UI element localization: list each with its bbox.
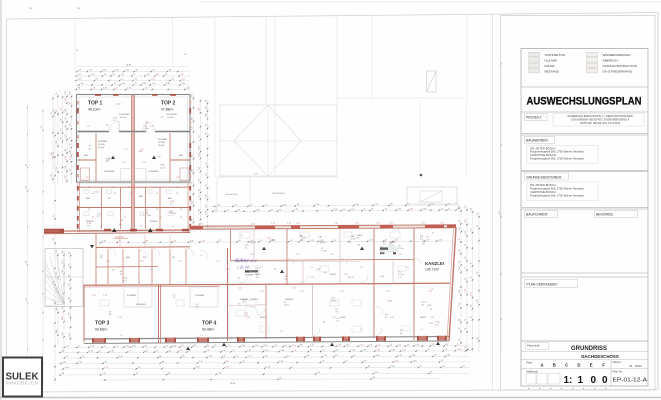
svg-text:86: 86	[62, 373, 64, 375]
svg-text:2,25: 2,25	[260, 291, 264, 293]
svg-text:1,25: 1,25	[69, 283, 71, 287]
svg-text:1,13: 1,13	[56, 167, 58, 171]
svg-text:2,0: 2,0	[116, 345, 119, 347]
svg-text:95: 95	[206, 184, 208, 186]
svg-text:95: 95	[105, 362, 107, 364]
svg-text:75: 75	[56, 93, 58, 95]
svg-text:1,75: 1,75	[287, 223, 291, 225]
svg-text:95: 95	[92, 193, 94, 195]
svg-text:75: 75	[133, 74, 135, 76]
svg-text:75: 75	[140, 226, 142, 228]
svg-text:2,10: 2,10	[465, 219, 467, 223]
svg-text:75: 75	[120, 209, 122, 211]
svg-text:85: 85	[432, 233, 434, 235]
svg-text:CHRISTINE BÖSCH: CHRISTINE BÖSCH	[530, 153, 556, 157]
svg-text:1,75: 1,75	[355, 223, 359, 225]
svg-text:75: 75	[61, 138, 63, 140]
svg-text:PROJEKT:: PROJEKT:	[526, 115, 542, 119]
svg-text:HLZ-MW: HLZ-MW	[545, 59, 557, 63]
svg-text:1,25: 1,25	[218, 373, 222, 375]
svg-text:3,2: 3,2	[398, 344, 401, 346]
svg-text:1.26. 04: 1.26. 04	[237, 266, 249, 270]
svg-text:86: 86	[78, 88, 80, 90]
svg-text:2,0: 2,0	[465, 206, 467, 209]
svg-text:75: 75	[128, 187, 130, 189]
svg-text:3,2: 3,2	[477, 213, 479, 216]
svg-text:2,0: 2,0	[442, 366, 445, 368]
svg-text:1,25: 1,25	[413, 360, 417, 362]
svg-text:1,4: 1,4	[280, 331, 283, 333]
svg-text:2,25: 2,25	[428, 291, 432, 293]
svg-text:2,10: 2,10	[375, 355, 379, 357]
svg-text:75: 75	[335, 355, 337, 357]
svg-text:75: 75	[465, 319, 467, 321]
svg-text:75: 75	[135, 79, 137, 81]
svg-text:11: 11	[29, 6, 32, 10]
svg-text:2,10: 2,10	[78, 79, 82, 81]
svg-text:1,4: 1,4	[471, 208, 473, 211]
svg-text:BÜRO: BÜRO	[250, 241, 256, 244]
svg-text:BAUWERBER:: BAUWERBER:	[526, 139, 549, 143]
svg-text:86: 86	[26, 261, 28, 263]
svg-text:1,75: 1,75	[296, 223, 300, 225]
svg-text:2,0: 2,0	[307, 355, 310, 357]
svg-text:1,25: 1,25	[196, 367, 200, 369]
svg-text:86: 86	[69, 297, 71, 299]
svg-text:2,25: 2,25	[300, 291, 304, 293]
svg-text:2,0: 2,0	[78, 70, 81, 72]
svg-text:VORRAUM: VORRAUM	[104, 170, 115, 173]
svg-text:1,13: 1,13	[70, 169, 72, 173]
svg-text:1,25: 1,25	[65, 166, 67, 170]
svg-text:12,5m: 12,5m	[170, 213, 176, 215]
svg-text:95: 95	[192, 155, 194, 157]
svg-text:86: 86	[168, 373, 170, 375]
svg-text:75: 75	[448, 208, 450, 210]
svg-text:1,4: 1,4	[182, 79, 185, 81]
svg-text:2,10: 2,10	[192, 126, 194, 130]
svg-text:2,25: 2,25	[92, 295, 96, 297]
svg-text:95: 95	[420, 366, 422, 368]
svg-text:1,4: 1,4	[310, 267, 313, 269]
svg-text:PLAN-VERFASSER:: PLAN-VERFASSER:	[527, 282, 558, 286]
svg-text:TOP 4: TOP 4	[202, 321, 216, 327]
svg-text:75: 75	[459, 238, 461, 240]
svg-text:95: 95	[180, 217, 182, 219]
svg-text:1,76: 1,76	[206, 194, 208, 198]
svg-text:75: 75	[219, 240, 221, 242]
svg-text:2,0: 2,0	[65, 125, 67, 128]
svg-text:ABBRUCH: ABBRUCH	[603, 59, 618, 63]
svg-text:86: 86	[206, 100, 208, 102]
svg-text:1,76: 1,76	[90, 346, 94, 348]
svg-text:75: 75	[96, 79, 98, 81]
svg-text:75: 75	[172, 226, 174, 228]
svg-text:DD-MA: DD-MA	[545, 64, 556, 68]
svg-text:2,0: 2,0	[193, 345, 196, 347]
svg-text:DACHBODEN: DACHBODEN	[225, 193, 238, 196]
svg-text:1,13: 1,13	[225, 367, 229, 369]
svg-text:86: 86	[199, 209, 201, 211]
svg-text:2,0: 2,0	[51, 112, 53, 115]
svg-text:75: 75	[69, 252, 71, 254]
svg-text:86: 86	[53, 109, 55, 111]
svg-text:ZIMMER: ZIMMER	[285, 299, 294, 301]
svg-text:1,4: 1,4	[199, 167, 201, 170]
svg-text:2,25: 2,25	[296, 254, 300, 256]
svg-text:1,25: 1,25	[122, 162, 126, 164]
svg-text:2,0: 2,0	[434, 355, 437, 357]
svg-text:BAD: BAD	[86, 197, 91, 200]
svg-text:86: 86	[146, 241, 148, 243]
svg-text:SCHRANK: SCHRANK	[195, 294, 205, 297]
svg-text:1,25: 1,25	[457, 349, 461, 351]
svg-text:86: 86	[157, 74, 159, 76]
svg-text:1,25: 1,25	[89, 351, 93, 353]
svg-text:2,25: 2,25	[118, 317, 122, 319]
svg-text:95: 95	[271, 209, 273, 211]
svg-text:86: 86	[192, 169, 194, 171]
svg-text:2,10: 2,10	[102, 373, 106, 375]
svg-text:2,10: 2,10	[355, 204, 359, 206]
svg-text:2,45: 2,45	[199, 153, 201, 157]
svg-text:55: 55	[430, 372, 432, 374]
svg-text:1,4: 1,4	[432, 344, 435, 346]
svg-text:2,0: 2,0	[236, 356, 239, 358]
svg-text:1,25: 1,25	[89, 70, 93, 72]
svg-text:BAD: BAD	[168, 197, 173, 200]
svg-text:1,75: 1,75	[389, 223, 393, 225]
svg-text:86: 86	[182, 356, 184, 358]
svg-text:2,45: 2,45	[206, 350, 210, 352]
svg-text:55: 55	[93, 88, 95, 90]
svg-text:2,10: 2,10	[199, 361, 203, 363]
svg-text:2,10: 2,10	[360, 345, 364, 347]
svg-text:75: 75	[465, 328, 467, 330]
svg-text:86: 86	[238, 210, 240, 212]
svg-text:1,4: 1,4	[406, 267, 409, 269]
svg-text:75: 75	[135, 83, 137, 85]
svg-text:1,4: 1,4	[459, 261, 461, 264]
svg-text:1,25: 1,25	[398, 355, 402, 357]
svg-text:2,45: 2,45	[352, 350, 356, 352]
svg-text:KÜCHE: KÜCHE	[98, 143, 106, 146]
svg-text:12,5m: 12,5m	[398, 274, 404, 276]
svg-text:2,0: 2,0	[265, 355, 268, 357]
svg-text:1,76: 1,76	[206, 204, 208, 208]
svg-text:GRST.NR. 582 EZ 303, KG 23444: GRST.NR. 582 EZ 303, KG 23444	[580, 121, 621, 125]
svg-text:SCHLAFEN: SCHLAFEN	[119, 113, 130, 116]
svg-text:75: 75	[199, 189, 201, 191]
svg-text:1,4: 1,4	[78, 74, 81, 76]
svg-text:1,76: 1,76	[206, 211, 208, 215]
svg-text:1,25: 1,25	[206, 106, 208, 110]
svg-text:EP-01-12-A: EP-01-12-A	[613, 377, 648, 383]
svg-text:75: 75	[407, 344, 409, 346]
svg-text:2,45: 2,45	[395, 360, 399, 362]
svg-text:BESTAND: BESTAND	[545, 69, 560, 73]
svg-text:1,13: 1,13	[65, 367, 69, 369]
svg-text:75: 75	[112, 187, 114, 189]
svg-text:1,25: 1,25	[176, 177, 180, 179]
svg-text:2,10: 2,10	[265, 350, 269, 352]
svg-text:1,4: 1,4	[200, 255, 203, 257]
svg-text:1,25: 1,25	[65, 134, 67, 138]
svg-text:1,25: 1,25	[86, 126, 90, 128]
svg-text:1,25: 1,25	[69, 275, 71, 279]
svg-text:2,25: 2,25	[140, 261, 144, 263]
svg-text:BAUFÜHRER:: BAUFÜHRER:	[526, 213, 548, 217]
svg-text:STAHLBETON: STAHLBETON	[545, 53, 565, 57]
svg-text:BÜRO: BÜRO	[260, 316, 266, 319]
svg-text:2,10: 2,10	[208, 356, 212, 358]
svg-text:WOHNEN: WOHNEN	[136, 304, 146, 306]
svg-text:1,4: 1,4	[181, 74, 184, 76]
svg-text:1,4: 1,4	[265, 204, 268, 206]
svg-text:12,5m: 12,5m	[331, 300, 337, 302]
svg-text:2,10: 2,10	[397, 209, 401, 211]
svg-text:1,13: 1,13	[465, 231, 467, 235]
svg-text:C: C	[565, 363, 568, 368]
svg-text:BÜRO: BÜRO	[330, 273, 336, 276]
svg-text:1,25: 1,25	[248, 355, 252, 357]
svg-text:2,25: 2,25	[310, 277, 314, 279]
svg-text:2,0: 2,0	[471, 229, 473, 232]
svg-text:95: 95	[181, 345, 183, 347]
svg-text:86: 86	[136, 70, 138, 72]
svg-text:3,2: 3,2	[104, 346, 107, 348]
svg-text:2,0: 2,0	[343, 209, 346, 211]
svg-text:TOP 3: TOP 3	[95, 321, 109, 327]
svg-text:2,0: 2,0	[477, 272, 479, 275]
svg-text:95: 95	[160, 217, 162, 219]
svg-text:55: 55	[56, 110, 58, 112]
svg-text:3,2: 3,2	[333, 240, 336, 242]
svg-text:2,10: 2,10	[119, 356, 123, 358]
svg-text:2,10: 2,10	[415, 344, 419, 346]
svg-text:1,4: 1,4	[62, 333, 64, 336]
svg-text:86: 86	[467, 349, 469, 351]
svg-text:1,76: 1,76	[127, 88, 131, 90]
svg-text:55: 55	[116, 88, 118, 90]
svg-text:95: 95	[69, 264, 71, 266]
svg-text:2,10: 2,10	[241, 345, 245, 347]
svg-text:95: 95	[114, 193, 116, 195]
svg-text:1,75: 1,75	[421, 222, 425, 224]
svg-text:1,25: 1,25	[338, 345, 342, 347]
svg-text:1,4: 1,4	[200, 335, 203, 337]
svg-text:55: 55	[112, 74, 114, 76]
svg-text:95: 95	[192, 95, 194, 97]
svg-text:1,25: 1,25	[426, 239, 430, 241]
svg-text:1,25: 1,25	[423, 208, 427, 210]
svg-text:SCHLAFEN: SCHLAFEN	[166, 113, 177, 116]
svg-text:2,45: 2,45	[115, 70, 119, 72]
svg-text:2,10: 2,10	[323, 355, 327, 357]
svg-text:75: 75	[180, 209, 182, 211]
svg-text:CHRISTINE BÖSCH: CHRISTINE BÖSCH	[530, 190, 556, 194]
svg-text:1,4: 1,4	[215, 210, 218, 212]
svg-text:95: 95	[156, 193, 158, 195]
svg-text:75: 75	[459, 328, 461, 330]
svg-text:2,45: 2,45	[125, 345, 129, 347]
svg-text:Purgleitnergasse 50b, 2700 Wie: Purgleitnergasse 50b, 2700 Wiener Neusta…	[530, 193, 584, 197]
svg-text:86: 86	[457, 208, 459, 210]
svg-text:3,2: 3,2	[121, 79, 124, 81]
svg-text:86: 86	[465, 346, 467, 348]
svg-text:3,2: 3,2	[138, 367, 141, 369]
svg-text:95: 95	[345, 361, 347, 363]
svg-text:2,10: 2,10	[391, 349, 395, 351]
svg-text:2,10: 2,10	[61, 128, 63, 132]
svg-text:1,4: 1,4	[317, 372, 320, 374]
svg-text:Plan-Nr.:: Plan-Nr.:	[613, 370, 624, 374]
svg-text:2,45: 2,45	[192, 201, 194, 205]
svg-text:2,45: 2,45	[206, 113, 208, 117]
svg-text:56,48m²: 56,48m²	[202, 328, 215, 332]
svg-text:2,10: 2,10	[279, 361, 283, 363]
svg-text:75: 75	[471, 262, 473, 264]
svg-text:2,45: 2,45	[256, 209, 260, 211]
svg-text:2,45: 2,45	[56, 307, 58, 311]
svg-text:1,13: 1,13	[255, 345, 259, 347]
svg-text:2,10: 2,10	[292, 345, 296, 347]
svg-text:1,13: 1,13	[53, 238, 55, 242]
svg-text:2,0: 2,0	[369, 344, 372, 346]
svg-text:2,0: 2,0	[364, 360, 367, 362]
svg-text:86: 86	[368, 366, 370, 368]
svg-text:95: 95	[153, 70, 155, 72]
svg-text:3,2: 3,2	[275, 345, 278, 347]
svg-text:55: 55	[61, 119, 63, 121]
svg-text:86: 86	[192, 118, 194, 120]
svg-text:14,85: 14,85	[126, 65, 132, 67]
svg-text:12,5m: 12,5m	[143, 128, 149, 130]
svg-text:2,45: 2,45	[431, 203, 435, 205]
svg-text:2,25: 2,25	[246, 317, 250, 319]
svg-text:85: 85	[430, 309, 432, 311]
svg-text:1,25: 1,25	[151, 79, 155, 81]
svg-text:KANZLEI: KANZLEI	[425, 261, 444, 266]
svg-text:75: 75	[192, 182, 194, 184]
svg-text:1,4: 1,4	[128, 350, 131, 352]
svg-text:1,4: 1,4	[360, 267, 363, 269]
svg-text:WÄRMEDÄMMUNG: WÄRMEDÄMMUNG	[603, 53, 632, 57]
svg-text:2,25: 2,25	[390, 317, 394, 319]
svg-text:2,25: 2,25	[340, 291, 344, 293]
svg-text:55: 55	[463, 366, 465, 368]
svg-text:55: 55	[322, 361, 324, 363]
svg-text:86: 86	[62, 351, 64, 353]
svg-text:1,76: 1,76	[375, 372, 379, 374]
svg-text:95: 95	[465, 244, 467, 246]
svg-text:1,25: 1,25	[132, 345, 136, 347]
svg-text:86: 86	[145, 345, 147, 347]
svg-text:86: 86	[65, 149, 67, 151]
svg-text:ZIMMER: ZIMMER	[150, 221, 158, 223]
svg-text:3,2: 3,2	[206, 163, 208, 166]
svg-text:1,4: 1,4	[240, 235, 243, 237]
svg-text:55: 55	[156, 350, 158, 352]
svg-text:GK-STÄNDERWAND: GK-STÄNDERWAND	[603, 69, 633, 73]
svg-text:1,4: 1,4	[222, 350, 225, 352]
svg-text:95: 95	[300, 345, 302, 347]
svg-text:3,2: 3,2	[168, 350, 171, 352]
svg-text:55: 55	[477, 225, 479, 227]
svg-text:0: 0	[591, 375, 597, 386]
svg-text:DACHGESCHOSS: DACHGESCHOSS	[581, 354, 619, 359]
svg-text:2,45: 2,45	[199, 108, 201, 112]
svg-text:Maßstab:: Maßstab:	[527, 370, 539, 374]
svg-text:75: 75	[232, 350, 234, 352]
svg-text:2,25: 2,25	[398, 254, 402, 256]
svg-text:3,2: 3,2	[104, 74, 107, 76]
svg-text:75: 75	[88, 209, 90, 211]
svg-text:2,45: 2,45	[51, 152, 53, 156]
svg-text:75: 75	[459, 339, 461, 341]
svg-text:86: 86	[226, 361, 228, 363]
svg-text:1:: 1:	[564, 375, 573, 386]
svg-text:12,5m: 12,5m	[389, 245, 395, 247]
svg-text:1,25: 1,25	[294, 209, 298, 211]
svg-text:0: 0	[602, 375, 608, 386]
svg-text:Bühler u.v.: Bühler u.v.	[235, 258, 258, 264]
svg-text:01 - 2002: 01 - 2002	[629, 364, 642, 368]
svg-text:86: 86	[169, 70, 171, 72]
svg-text:1,76: 1,76	[104, 367, 108, 369]
svg-text:1,25: 1,25	[334, 209, 338, 211]
svg-text:1,4: 1,4	[206, 173, 208, 176]
svg-text:75: 75	[471, 276, 473, 278]
svg-text:75: 75	[165, 74, 167, 76]
svg-text:B: B	[553, 363, 556, 368]
svg-text:VORRAUM: VORRAUM	[148, 170, 159, 173]
svg-text:55: 55	[441, 208, 443, 210]
svg-text:1,76: 1,76	[53, 152, 55, 156]
svg-text:1,76: 1,76	[70, 124, 72, 128]
svg-text:DACHBODEN: DACHBODEN	[272, 192, 285, 195]
svg-text:86: 86	[159, 356, 161, 358]
svg-text:14,5m²: 14,5m²	[120, 116, 127, 119]
svg-text:75: 75	[156, 209, 158, 211]
svg-text:14,5m²: 14,5m²	[167, 116, 174, 119]
svg-text:1,76: 1,76	[70, 91, 72, 95]
svg-text:86: 86	[297, 204, 299, 206]
svg-text:BAD: BAD	[126, 256, 131, 259]
svg-text:95: 95	[130, 193, 132, 195]
svg-text:2,10: 2,10	[363, 349, 367, 351]
svg-text:3,2: 3,2	[336, 350, 339, 352]
svg-text:1,25: 1,25	[150, 126, 154, 128]
svg-text:1,4: 1,4	[179, 350, 182, 352]
svg-text:2,25: 2,25	[398, 277, 402, 279]
svg-text:2,10: 2,10	[65, 98, 67, 102]
svg-text:1,4: 1,4	[260, 267, 263, 269]
svg-text:95: 95	[92, 217, 94, 219]
svg-text:95: 95	[279, 377, 281, 379]
svg-text:WOHNEN: WOHNEN	[98, 141, 108, 143]
svg-text:75: 75	[88, 187, 90, 189]
svg-text:1,76: 1,76	[142, 83, 146, 85]
svg-text:1,13: 1,13	[201, 240, 205, 242]
svg-text:95: 95	[310, 350, 312, 352]
svg-text:BAD: BAD	[139, 195, 144, 198]
svg-text:86: 86	[238, 240, 240, 242]
svg-text:1,13: 1,13	[145, 88, 149, 90]
svg-text:2,45: 2,45	[62, 316, 64, 320]
svg-text:2,45: 2,45	[410, 209, 414, 211]
svg-text:86: 86	[70, 102, 72, 104]
